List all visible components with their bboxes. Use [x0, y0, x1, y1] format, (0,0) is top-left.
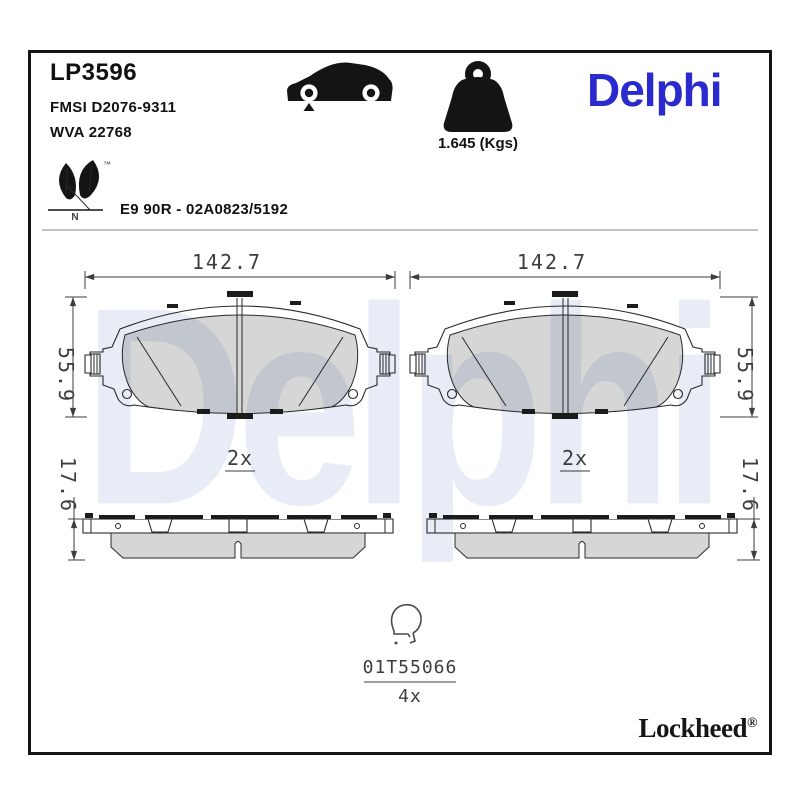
datasheet-page: LP3596 FMSI D2076-9311 WVA 22768 1.645 (… [0, 0, 800, 800]
pad-profile-left-view [83, 513, 393, 558]
dim-height-left: 55.9 [54, 297, 87, 417]
eco-leaf-icon: N ™ [45, 158, 111, 227]
approval-number: E9 90R - 02A0823/5192 [120, 201, 288, 218]
lockheed-logo: Lockheed® [639, 713, 757, 744]
delphi-logo: Delphi [587, 63, 722, 117]
dim-width-right: 142.7 [410, 250, 720, 289]
pad-qty-left: 2x [227, 446, 253, 470]
dim-thickness-left: 17.6 [56, 457, 85, 560]
sheet-frame: LP3596 FMSI D2076-9311 WVA 22768 1.645 (… [28, 50, 772, 755]
pad-height-label: 55.9 [54, 347, 78, 403]
technical-drawing: 142.7 142.7 55.9 55.9 [31, 233, 769, 757]
eco-n-label: N [71, 212, 78, 222]
pad-width-label: 142.7 [192, 250, 262, 274]
weight-value: 1.645 (Kgs) [403, 135, 553, 152]
registered-symbol: ® [747, 716, 757, 731]
pad-front-right-view [410, 291, 720, 419]
lockheed-wordmark: Lockheed [639, 713, 748, 743]
pad-qty-right: 2x [562, 446, 588, 470]
pad-height-label: 55.9 [733, 347, 757, 403]
dim-thickness-right: 17.6 [737, 457, 762, 560]
weight-icon [441, 61, 515, 140]
fmsi-reference: FMSI D2076-9311 [50, 99, 176, 116]
pad-profile-right-view [427, 513, 737, 558]
header-divider [42, 229, 758, 231]
clip-qty: 4x [398, 686, 422, 707]
pad-thickness-label: 17.6 [56, 457, 80, 513]
pad-thickness-label: 17.6 [738, 457, 762, 513]
clip-part-number: 01T55066 [363, 657, 458, 678]
pad-width-label: 142.7 [517, 250, 587, 274]
front-wheel-hub [305, 89, 313, 97]
pad-front-left-view [85, 291, 395, 419]
part-number: LP3596 [50, 59, 137, 87]
clip-drawing [392, 605, 421, 645]
front-axle-marker-icon [304, 103, 315, 111]
car-axle-icon [283, 54, 397, 117]
dim-width-left: 142.7 [85, 250, 395, 289]
trademark-symbol: ™ [103, 160, 111, 169]
leaf-right-icon [79, 160, 99, 199]
rear-wheel-hub [367, 89, 375, 97]
dim-height-right: 55.9 [720, 297, 758, 417]
weight-body-icon [444, 77, 513, 132]
wva-reference: WVA 22768 [50, 124, 132, 141]
